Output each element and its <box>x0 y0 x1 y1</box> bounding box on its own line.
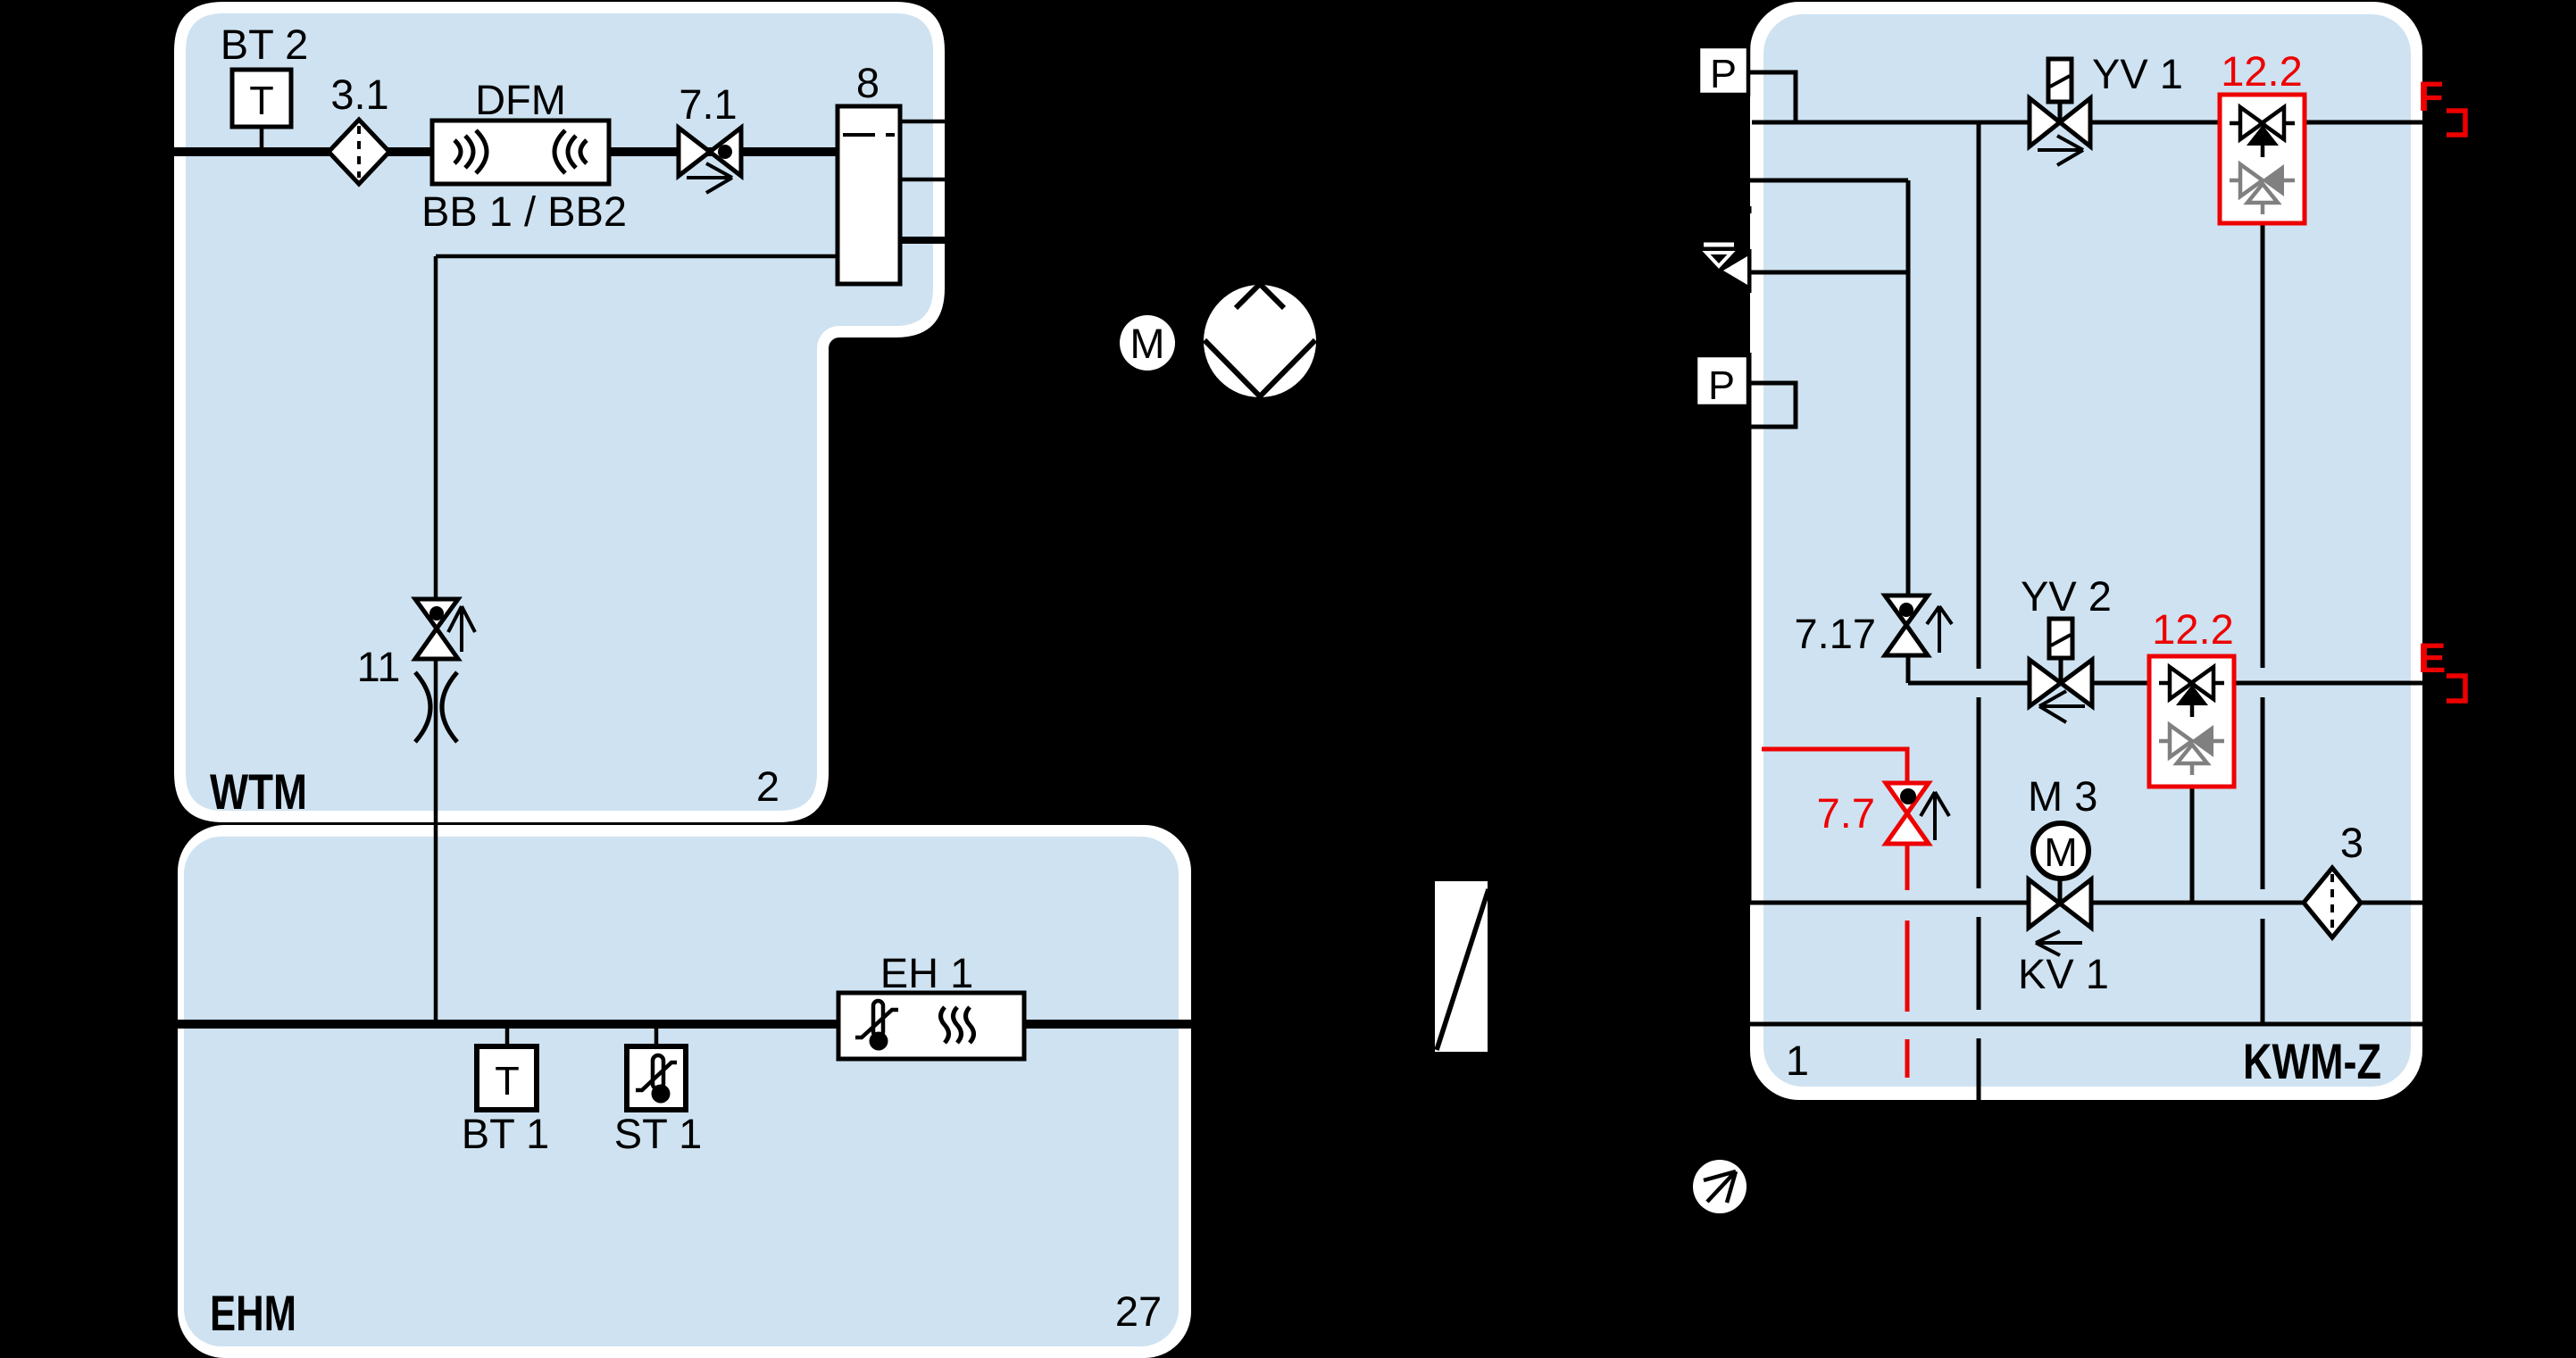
svg-text:7.7: 7.7 <box>1817 789 1875 837</box>
svg-text:EH 1: EH 1 <box>880 949 974 996</box>
svg-text:27: 27 <box>1115 1287 1162 1335</box>
svg-text:7.17: 7.17 <box>1795 610 1876 657</box>
svg-text:12.2: 12.2 <box>2152 605 2233 653</box>
svg-text:1: 1 <box>1786 1037 1809 1084</box>
svg-text:E: E <box>2418 634 2446 681</box>
svg-text:KWM-Z: KWM-Z <box>2243 1033 2381 1089</box>
svg-text:DFM: DFM <box>475 76 566 123</box>
svg-text:YV 2: YV 2 <box>2021 572 2112 620</box>
svg-text:BB 1 / BB2: BB 1 / BB2 <box>421 187 627 235</box>
svg-text:3: 3 <box>2340 819 2363 866</box>
svg-text:WTM: WTM <box>210 763 307 820</box>
svg-text:ST 1: ST 1 <box>614 1110 702 1157</box>
svg-text:12.2: 12.2 <box>2221 47 2302 95</box>
svg-text:P: P <box>1708 362 1735 408</box>
svg-text:3.1: 3.1 <box>330 71 388 118</box>
svg-text:M: M <box>1130 320 1164 367</box>
svg-text:M: M <box>2044 829 2078 875</box>
svg-text:M 3: M 3 <box>2028 772 2097 820</box>
svg-text:BT 1: BT 1 <box>462 1110 549 1157</box>
svg-text:T: T <box>249 78 274 123</box>
svg-text:11: 11 <box>357 643 401 690</box>
svg-text:P: P <box>1710 51 1737 96</box>
svg-text:T: T <box>495 1058 520 1104</box>
svg-text:8: 8 <box>856 59 880 106</box>
svg-text:7.1: 7.1 <box>679 80 737 128</box>
svg-text:YV 1: YV 1 <box>2092 50 2183 97</box>
svg-text:2: 2 <box>756 762 779 810</box>
svg-text:EHM: EHM <box>210 1285 296 1341</box>
svg-text:KV 1: KV 1 <box>2018 950 2109 997</box>
svg-text:BT 2: BT 2 <box>221 21 308 68</box>
svg-text:F: F <box>2418 72 2444 120</box>
